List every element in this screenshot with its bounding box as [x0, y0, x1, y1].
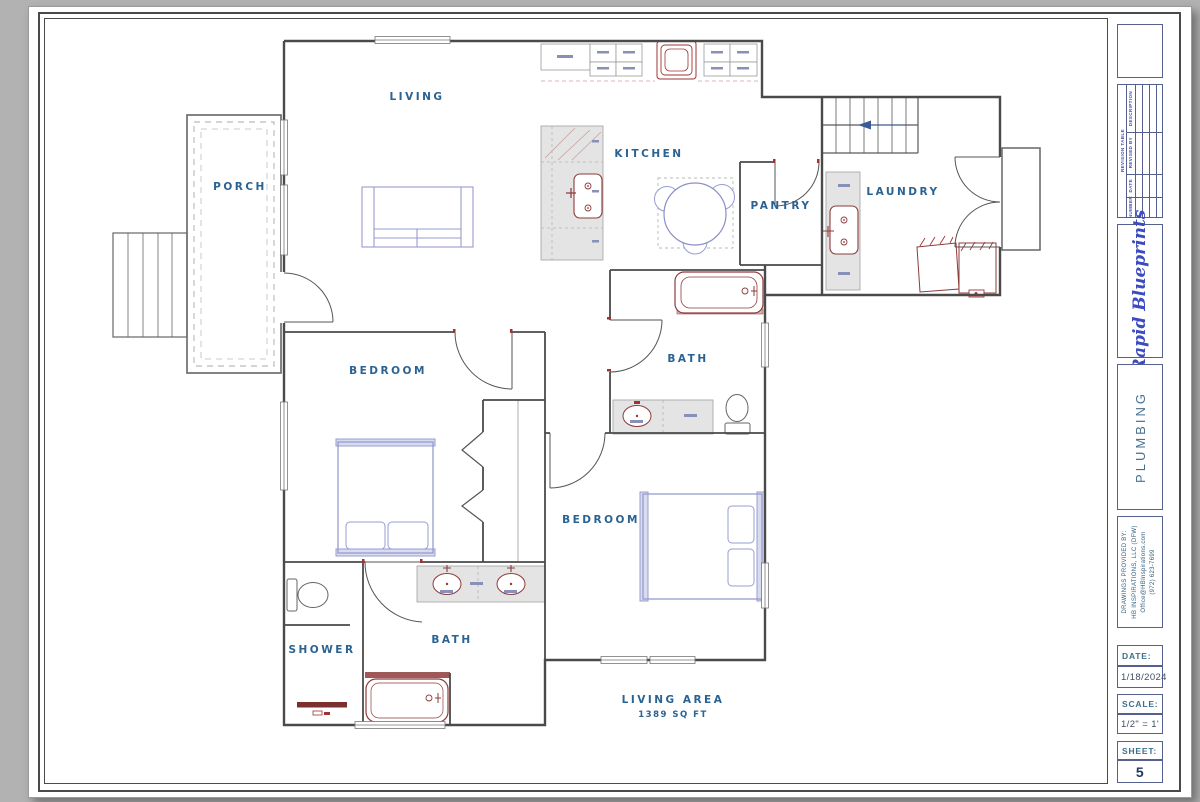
- room-label-laundry: LAUNDRY: [866, 186, 939, 198]
- revision-col-description: DESCRIPTION: [1126, 85, 1135, 132]
- laundry-double-door-top: [955, 157, 1000, 202]
- living-area-label: LIVING AREA: [622, 694, 725, 706]
- room-label-shower: SHOWER: [288, 644, 355, 656]
- exterior-walls: [284, 41, 1000, 725]
- provider-line1: DRAWINGS PROVIDED BY:: [1121, 530, 1130, 613]
- discipline-box: PLUMBING: [1117, 364, 1163, 510]
- deck: [1002, 148, 1040, 250]
- bed-left: [336, 439, 435, 556]
- range-stove: [657, 41, 696, 79]
- toilet-lower: [287, 579, 328, 611]
- room-label-porch: PORCH: [213, 181, 267, 193]
- revision-col-revised-by: REVISED BY: [1126, 132, 1135, 174]
- revision-col-date: DATE: [1126, 174, 1135, 197]
- bath-upper-door: [610, 320, 662, 372]
- stamp-box: [1117, 24, 1163, 78]
- sheet-discipline: PLUMBING: [1133, 391, 1148, 483]
- room-label-bath-upper: BATH: [667, 353, 708, 365]
- bathtub-upper: [675, 272, 763, 314]
- room-label-bath-lower: BATH: [431, 634, 472, 646]
- room-label-pantry: PANTRY: [751, 200, 812, 212]
- dryer: [959, 242, 996, 297]
- bath-lower-door: [365, 562, 422, 622]
- toilet-upper: [725, 395, 750, 435]
- bedroom-lower-door: [550, 433, 605, 488]
- provider-line2: HB INSPIRATIONS, LLC (DFW): [1131, 525, 1140, 618]
- company-logo: Rapid Blueprints: [1130, 210, 1150, 373]
- revision-table: REVISION TABLE DESCRIPTION REVISED BY DA…: [1117, 84, 1163, 218]
- stairs: [822, 97, 918, 153]
- provider-box: DRAWINGS PROVIDED BY: HB INSPIRATIONS, L…: [1117, 516, 1163, 628]
- desk-background: PORCH LIVING KITCHEN PANTRY LAUNDRY BATH…: [0, 0, 1200, 802]
- floor-plan: PORCH LIVING KITCHEN PANTRY LAUNDRY BATH…: [44, 18, 1106, 782]
- sheet-number: 5: [1117, 760, 1163, 783]
- provider-line3: Office@HBInspirations.com: [1140, 531, 1149, 612]
- logo-box: Rapid Blueprints: [1117, 224, 1163, 358]
- date-label: DATE:: [1117, 645, 1163, 666]
- provider-line4: (972) 623-7699: [1149, 549, 1158, 594]
- bedroom-left-door: [455, 332, 512, 389]
- porch: [187, 115, 281, 373]
- date-value: 1/18/2024: [1117, 666, 1163, 688]
- washer: [917, 236, 959, 292]
- bed-right: [640, 492, 765, 601]
- scale-value: 1/2" = 1': [1117, 714, 1163, 734]
- room-label-bedroom-left: BEDROOM: [349, 365, 427, 377]
- room-label-kitchen: KITCHEN: [614, 148, 683, 160]
- sofa: [362, 187, 473, 247]
- room-label-bedroom-lower: BEDROOM: [562, 514, 640, 526]
- closet-bifold-doors: [462, 400, 518, 562]
- front-door-opening: [280, 272, 288, 323]
- laundry-double-door-bottom: [955, 202, 1000, 247]
- room-label-living: LIVING: [389, 91, 444, 103]
- bathtub-lower: [365, 672, 450, 722]
- shower-pan: [297, 702, 347, 715]
- porch-steps: [113, 233, 187, 337]
- revision-table-title-text: REVISION TABLE: [1120, 129, 1125, 172]
- windows: [280, 37, 769, 729]
- sheet-label: SHEET:: [1117, 741, 1163, 760]
- kitchen-cabinets: [541, 44, 762, 81]
- kitchen-table: [655, 178, 735, 254]
- living-area-value: 1389 SQ FT: [638, 710, 708, 720]
- front-door: [284, 273, 333, 322]
- scale-label: SCALE:: [1117, 694, 1163, 714]
